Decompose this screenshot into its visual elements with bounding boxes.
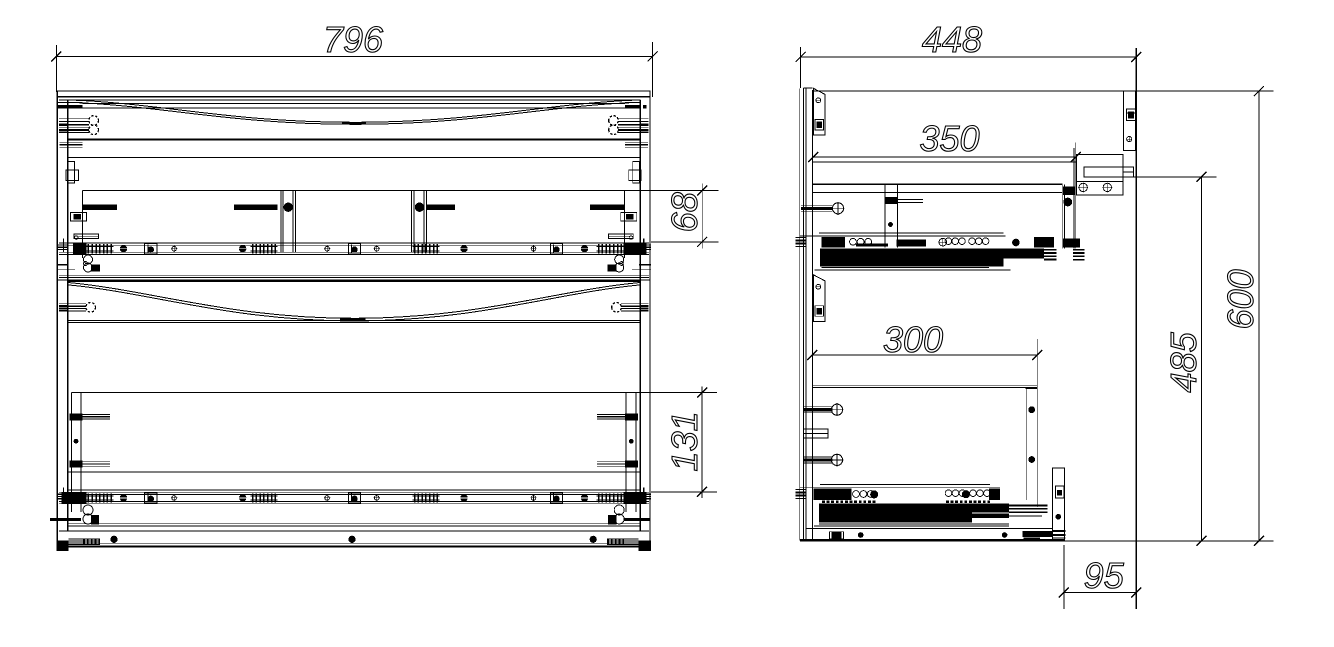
- svg-text:600: 600: [1220, 269, 1261, 329]
- svg-text:350: 350: [919, 118, 979, 159]
- svg-text:448: 448: [922, 19, 982, 60]
- svg-text:485: 485: [1163, 331, 1204, 392]
- svg-text:68: 68: [664, 192, 705, 232]
- svg-text:95: 95: [1084, 555, 1125, 596]
- svg-text:300: 300: [883, 319, 943, 360]
- svg-text:131: 131: [664, 411, 705, 471]
- svg-text:796: 796: [323, 19, 384, 60]
